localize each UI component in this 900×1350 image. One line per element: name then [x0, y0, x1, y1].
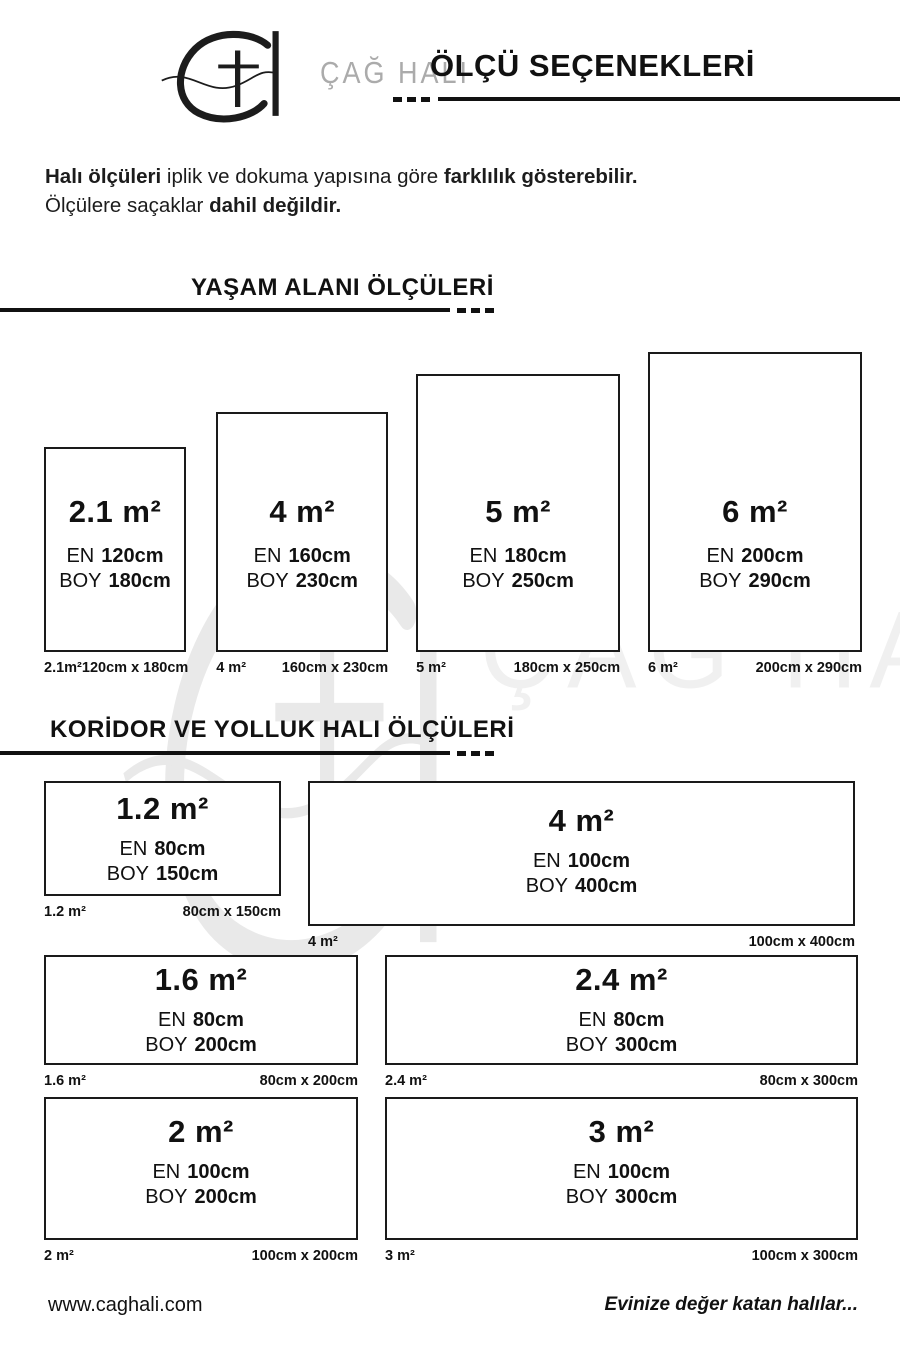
brand-logo: ÇAĞ HALI: [160, 24, 470, 123]
size-box: 4 m² EN100cm BOY400cm: [308, 781, 855, 926]
caption-dimensions: 100cm x 300cm: [752, 1248, 858, 1264]
width-spec: EN120cm: [66, 544, 163, 569]
boy-value: 200cm: [194, 1034, 256, 1056]
size-item: 2.4 m² EN80cm BOY300cm 2.4 m² 80cm x 300…: [385, 955, 858, 1089]
size-box: 5 m² EN180cm BOY250cm: [416, 374, 620, 652]
width-spec: EN100cm: [573, 1160, 670, 1185]
boy-label: BOY: [145, 1186, 187, 1208]
boy-value: 180cm: [108, 570, 170, 592]
en-label: EN: [470, 545, 498, 567]
caption-dimensions: 200cm x 290cm: [756, 660, 862, 676]
width-spec: EN80cm: [120, 837, 206, 862]
caption-dimensions: 120cm x 180cm: [82, 660, 188, 676]
dash-decoration: [471, 751, 480, 756]
area-label: 2.4 m²: [575, 962, 668, 998]
heading-underline: [0, 307, 499, 313]
size-box: 4 m² EN160cm BOY230cm: [216, 412, 388, 652]
area-label: 2 m²: [168, 1114, 234, 1150]
section-heading-corridor: KORİDOR VE YOLLUK HALI ÖLÇÜLERİ: [50, 716, 514, 744]
boy-label: BOY: [566, 1186, 608, 1208]
en-value: 200cm: [741, 545, 803, 567]
width-spec: EN200cm: [706, 544, 803, 569]
boy-value: 300cm: [615, 1186, 677, 1208]
size-box: 1.6 m² EN80cm BOY200cm: [44, 955, 358, 1065]
length-spec: BOY200cm: [145, 1033, 257, 1058]
size-item: 1.2 m² EN80cm BOY150cm 1.2 m² 80cm x 150…: [44, 781, 281, 920]
size-box: 1.2 m² EN80cm BOY150cm: [44, 781, 281, 896]
length-spec: BOY230cm: [246, 569, 358, 594]
size-box: 2 m² EN100cm BOY200cm: [44, 1097, 358, 1240]
area-label: 1.2 m²: [116, 791, 209, 827]
en-value: 160cm: [288, 545, 350, 567]
title-underline: [393, 96, 900, 102]
intro-regular: Ölçülere saçaklar: [45, 194, 209, 217]
en-label: EN: [706, 545, 734, 567]
dash-decoration: [471, 308, 480, 313]
heading-underline: [0, 750, 499, 756]
length-spec: BOY150cm: [107, 862, 219, 887]
caption-dimensions: 80cm x 300cm: [760, 1073, 858, 1089]
en-value: 180cm: [504, 545, 566, 567]
length-spec: BOY400cm: [526, 874, 638, 899]
size-item: 2 m² EN100cm BOY200cm 2 m² 100cm x 200cm: [44, 1097, 358, 1264]
length-spec: BOY250cm: [462, 569, 574, 594]
caption-area: 2.4 m²: [385, 1073, 427, 1089]
en-value: 100cm: [187, 1161, 249, 1183]
width-spec: EN100cm: [533, 849, 630, 874]
size-item: 2.1 m² EN120cm BOY180cm 2.1m² 120cm x 18…: [44, 447, 188, 676]
length-spec: BOY300cm: [566, 1033, 678, 1058]
caption-area: 6 m²: [648, 660, 678, 676]
length-spec: BOY300cm: [566, 1185, 678, 1210]
size-caption: 6 m² 200cm x 290cm: [648, 660, 862, 676]
caption-area: 1.2 m²: [44, 904, 86, 920]
boy-label: BOY: [145, 1034, 187, 1056]
intro-bold: Halı ölçüleri: [45, 165, 161, 188]
size-caption: 2.1m² 120cm x 180cm: [44, 660, 188, 676]
dash-decoration: [407, 97, 416, 102]
area-label: 2.1 m²: [69, 494, 162, 530]
width-spec: EN100cm: [152, 1160, 249, 1185]
boy-value: 150cm: [156, 863, 218, 885]
boy-label: BOY: [699, 570, 741, 592]
caption-area: 4 m²: [308, 934, 338, 950]
size-box: 6 m² EN200cm BOY290cm: [648, 352, 862, 652]
divider-line: [0, 308, 450, 312]
width-spec: EN80cm: [579, 1008, 665, 1033]
boy-value: 200cm: [194, 1186, 256, 1208]
en-label: EN: [158, 1009, 186, 1031]
width-spec: EN180cm: [470, 544, 567, 569]
width-spec: EN80cm: [158, 1008, 244, 1033]
caption-dimensions: 100cm x 400cm: [749, 934, 855, 950]
en-label: EN: [533, 850, 561, 872]
boy-label: BOY: [526, 875, 568, 897]
size-caption: 1.2 m² 80cm x 150cm: [44, 904, 281, 920]
size-caption: 3 m² 100cm x 300cm: [385, 1248, 858, 1264]
page-title: ÖLÇÜ SEÇENEKLERİ: [430, 48, 755, 84]
boy-label: BOY: [246, 570, 288, 592]
size-caption: 4 m² 100cm x 400cm: [308, 934, 855, 950]
brand-logo-monogram-icon: [160, 24, 310, 123]
length-spec: BOY290cm: [699, 569, 811, 594]
divider-line: [438, 97, 900, 101]
size-box: 2.1 m² EN120cm BOY180cm: [44, 447, 186, 652]
size-item: 5 m² EN180cm BOY250cm 5 m² 180cm x 250cm: [416, 374, 620, 676]
width-spec: EN160cm: [254, 544, 351, 569]
boy-value: 230cm: [296, 570, 358, 592]
en-label: EN: [66, 545, 94, 567]
length-spec: BOY180cm: [59, 569, 171, 594]
caption-area: 2 m²: [44, 1248, 74, 1264]
en-value: 100cm: [608, 1161, 670, 1183]
boy-value: 400cm: [575, 875, 637, 897]
size-caption: 1.6 m² 80cm x 200cm: [44, 1073, 358, 1089]
dash-decoration: [485, 308, 494, 313]
dash-decoration: [457, 751, 466, 756]
en-value: 100cm: [568, 850, 630, 872]
size-item: 4 m² EN160cm BOY230cm 4 m² 160cm x 230cm: [216, 412, 388, 676]
caption-area: 4 m²: [216, 660, 246, 676]
boy-value: 250cm: [512, 570, 574, 592]
caption-dimensions: 80cm x 150cm: [183, 904, 281, 920]
area-label: 6 m²: [722, 494, 788, 530]
caption-area: 1.6 m²: [44, 1073, 86, 1089]
en-label: EN: [573, 1161, 601, 1183]
area-label: 5 m²: [485, 494, 551, 530]
living-area-sizes-row: 2.1 m² EN120cm BOY180cm 2.1m² 120cm x 18…: [44, 350, 862, 676]
caption-dimensions: 100cm x 200cm: [252, 1248, 358, 1264]
footer-website: www.caghali.com: [48, 1294, 203, 1317]
dash-decoration: [393, 97, 402, 102]
footer-slogan: Evinize değer katan halılar...: [605, 1294, 858, 1316]
en-value: 120cm: [101, 545, 163, 567]
boy-value: 300cm: [615, 1034, 677, 1056]
caption-area: 5 m²: [416, 660, 446, 676]
caption-area: 3 m²: [385, 1248, 415, 1264]
area-label: 1.6 m²: [155, 962, 248, 998]
boy-value: 290cm: [748, 570, 810, 592]
boy-label: BOY: [566, 1034, 608, 1056]
size-box: 3 m² EN100cm BOY300cm: [385, 1097, 858, 1240]
boy-label: BOY: [107, 863, 149, 885]
en-value: 80cm: [613, 1009, 664, 1031]
area-label: 3 m²: [589, 1114, 655, 1150]
size-box: 2.4 m² EN80cm BOY300cm: [385, 955, 858, 1065]
en-label: EN: [579, 1009, 607, 1031]
dash-decoration: [485, 751, 494, 756]
en-value: 80cm: [154, 838, 205, 860]
en-label: EN: [152, 1161, 180, 1183]
size-item: 1.6 m² EN80cm BOY200cm 1.6 m² 80cm x 200…: [44, 955, 358, 1089]
area-label: 4 m²: [269, 494, 335, 530]
boy-label: BOY: [59, 570, 101, 592]
intro-bold: farklılık gösterebilir.: [444, 165, 638, 188]
section-heading-living-area: YAŞAM ALANI ÖLÇÜLERİ: [191, 274, 494, 302]
length-spec: BOY200cm: [145, 1185, 257, 1210]
en-value: 80cm: [193, 1009, 244, 1031]
dash-decoration: [457, 308, 466, 313]
size-item: 3 m² EN100cm BOY300cm 3 m² 100cm x 300cm: [385, 1097, 858, 1264]
size-caption: 5 m² 180cm x 250cm: [416, 660, 620, 676]
size-item: 4 m² EN100cm BOY400cm 4 m² 100cm x 400cm: [308, 781, 855, 950]
caption-dimensions: 180cm x 250cm: [514, 660, 620, 676]
page: ÇAĞ HALI ÇAĞ HALI ÖLÇÜ SEÇENEKLERİ: [0, 0, 900, 1350]
dash-decoration: [421, 97, 430, 102]
area-label: 4 m²: [549, 803, 615, 839]
caption-area: 2.1m²: [44, 660, 82, 676]
caption-dimensions: 80cm x 200cm: [260, 1073, 358, 1089]
divider-line: [0, 751, 450, 755]
size-caption: 4 m² 160cm x 230cm: [216, 660, 388, 676]
intro-bold: dahil değildir.: [209, 194, 341, 217]
size-caption: 2.4 m² 80cm x 300cm: [385, 1073, 858, 1089]
intro-text: Halı ölçüleri iplik ve dokuma yapısına g…: [45, 162, 638, 220]
en-label: EN: [254, 545, 282, 567]
intro-regular: iplik ve dokuma yapısına göre: [161, 165, 444, 188]
size-caption: 2 m² 100cm x 200cm: [44, 1248, 358, 1264]
boy-label: BOY: [462, 570, 504, 592]
en-label: EN: [120, 838, 148, 860]
size-item: 6 m² EN200cm BOY290cm 6 m² 200cm x 290cm: [648, 352, 862, 676]
caption-dimensions: 160cm x 230cm: [282, 660, 388, 676]
